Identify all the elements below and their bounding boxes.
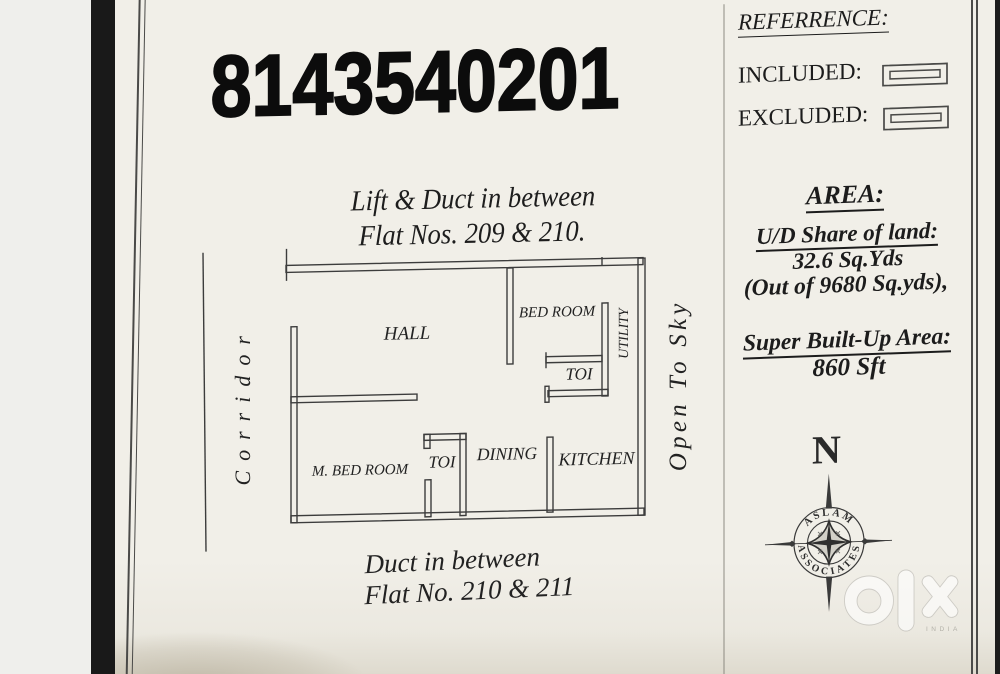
svg-text:INDIA: INDIA [926, 626, 961, 633]
